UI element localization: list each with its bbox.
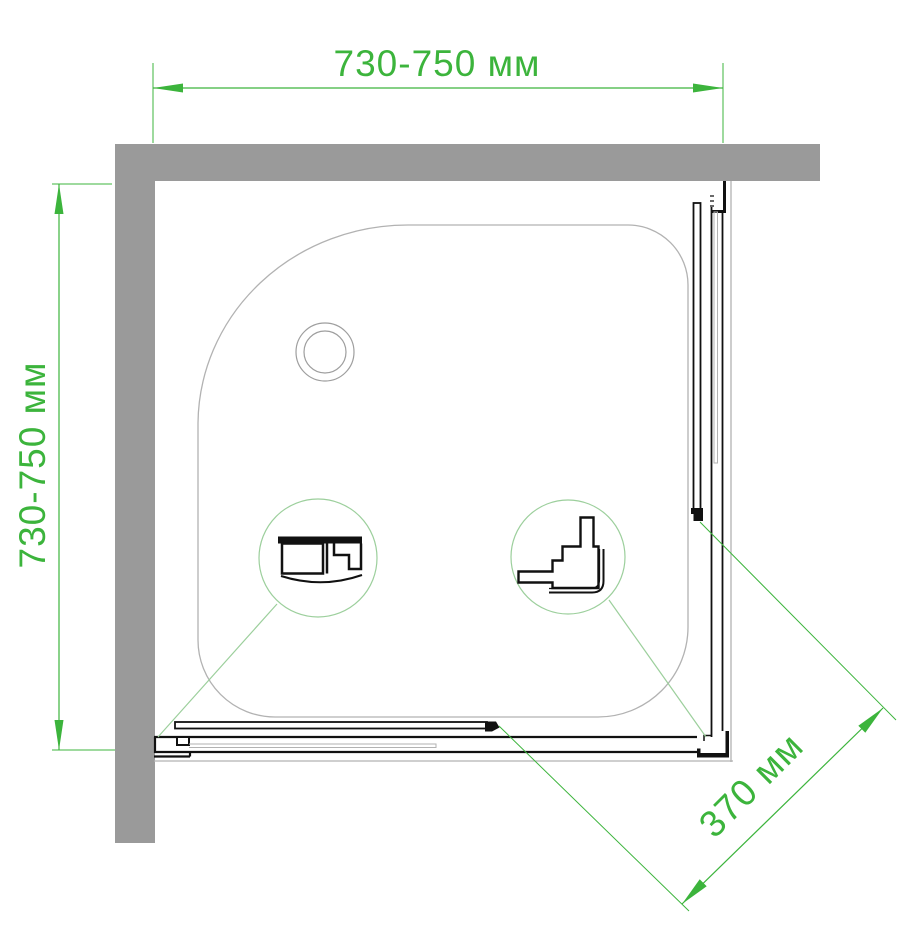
bottom-rail xyxy=(154,737,697,757)
dimension-left xyxy=(52,184,115,750)
tray-basin-outline xyxy=(198,225,688,717)
wall-profile-detail-glyph xyxy=(278,537,362,583)
corner-profile-detail-glyph xyxy=(519,518,604,593)
wall-left xyxy=(115,144,155,843)
bottom-door-panel xyxy=(175,722,487,729)
right-wall-profile-teeth xyxy=(710,196,714,206)
bottom-assembly xyxy=(154,722,729,758)
detail-leader-left xyxy=(158,604,277,737)
dimension-top-label: 730-750 мм xyxy=(334,43,541,84)
drawing-canvas: 730-750 мм 730-750 мм 370 мм xyxy=(0,0,904,935)
detail-callouts xyxy=(158,499,706,737)
drain-icon xyxy=(296,323,354,381)
right-door-panel xyxy=(694,203,701,511)
bottom-rail-track xyxy=(189,744,436,748)
dimension-diagonal-label: 370 мм xyxy=(691,725,811,845)
right-fixed-panel-track xyxy=(714,212,718,463)
shower-tray xyxy=(154,181,733,762)
bottom-rail-step xyxy=(177,737,189,745)
dimension-left-label: 730-750 мм xyxy=(12,362,53,569)
corner-bracket xyxy=(697,731,729,758)
bottom-door-hook xyxy=(485,722,500,732)
detail-leader-right xyxy=(609,600,706,737)
technical-drawing: 730-750 мм 730-750 мм 370 мм xyxy=(0,0,904,935)
right-door-hook xyxy=(691,508,703,521)
wall-top xyxy=(115,144,820,181)
right-side-assembly xyxy=(691,181,725,737)
